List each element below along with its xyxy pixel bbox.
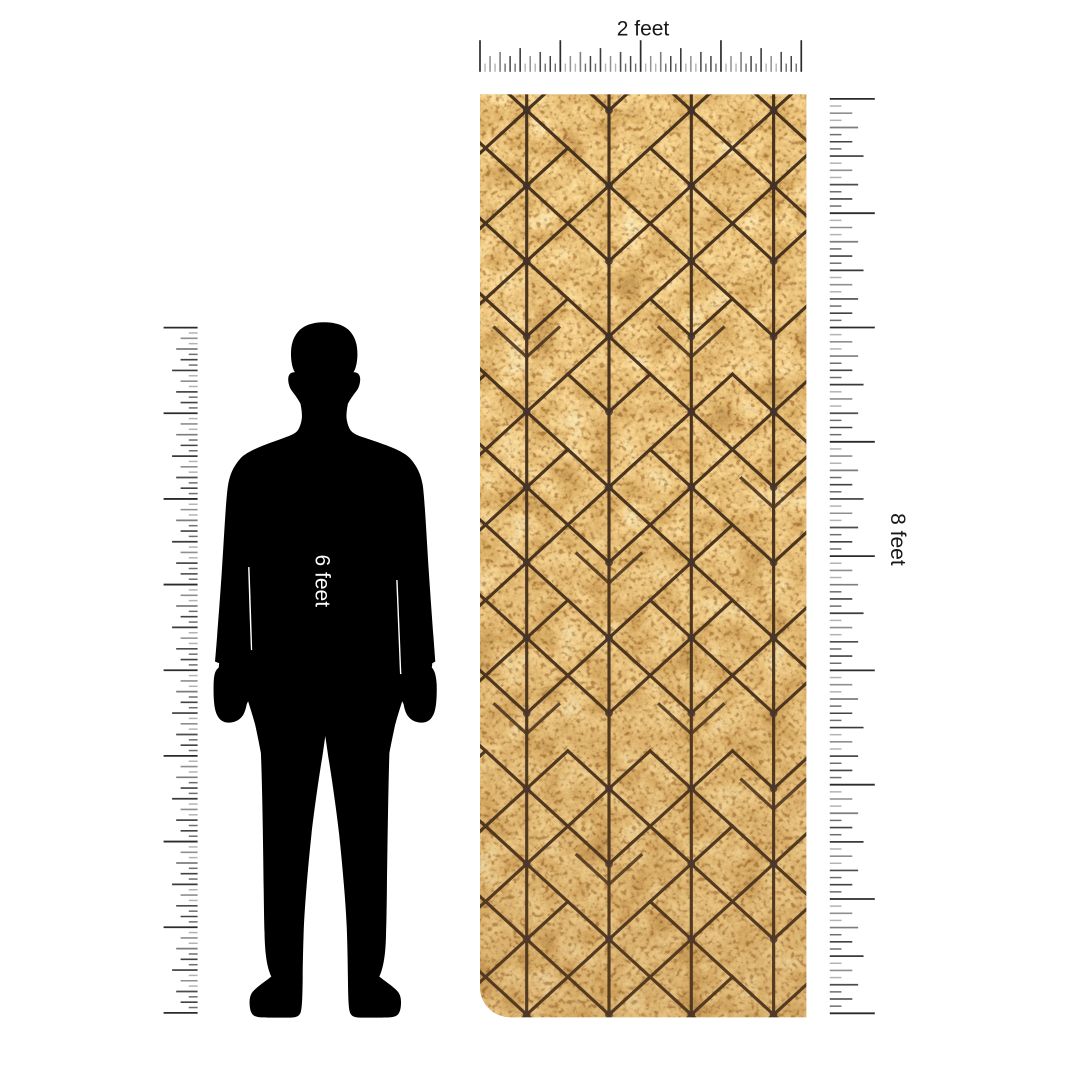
svg-text:8 feet: 8 feet xyxy=(886,513,909,566)
svg-text:2 feet: 2 feet xyxy=(617,17,670,40)
svg-text:6 feet: 6 feet xyxy=(310,555,333,608)
